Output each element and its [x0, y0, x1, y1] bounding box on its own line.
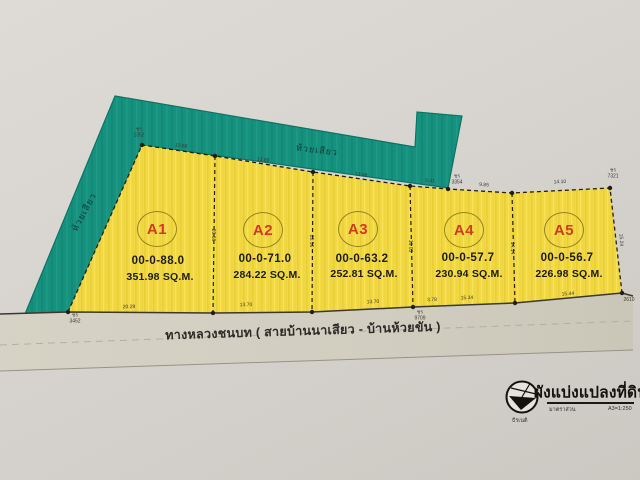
survey-dimension-label: 20.29 — [123, 305, 136, 311]
plot-rai-value: 00-0-57.7 — [442, 252, 495, 264]
survey-dimension-label: 5.41 — [425, 179, 435, 185]
logo-caption: ธีรเนติ — [512, 417, 528, 425]
plot-id: A5 — [554, 222, 574, 239]
survey-marker-label: ชร 1352 — [133, 127, 144, 139]
plot-area-value: 351.98 SQ.M. — [126, 271, 193, 283]
plan-title: ผังแบ่งแปลงที่ดิน — [534, 380, 640, 405]
survey-dimension-label: 3.78 — [427, 298, 437, 304]
plot-area-value: 226.98 SQ.M. — [535, 268, 602, 280]
survey-dimension-label: 14.14 — [508, 242, 514, 255]
company-logo-icon — [507, 382, 538, 413]
plot-rai-value: 00-0-71.0 — [239, 253, 292, 265]
survey-dimension-label: 20.66 — [209, 229, 215, 242]
title-underline — [547, 402, 634, 404]
plot-area-value: 284.22 SQ.M. — [233, 269, 300, 281]
plot-id-badge: A1 — [137, 211, 177, 247]
plot-id-badge: A5 — [544, 212, 584, 248]
plot-id-badge: A4 — [444, 212, 484, 248]
survey-dimension-label: 9.85 — [479, 183, 489, 189]
plot-rai-value: 00-0-63.2 — [336, 253, 389, 265]
survey-dimension-label: 20.56 — [307, 235, 313, 248]
survey-dimension-label: 15.34 — [461, 296, 474, 302]
plot-rai-value: 00-0-56.7 — [541, 252, 594, 264]
survey-dimension-label: 14.10 — [554, 180, 567, 186]
plot-rai-value: 00-0-88.0 — [132, 255, 185, 267]
plan-photo: ห้วยเสียว ห้วยเสียว A1 00-0-88.0 351.98 … — [0, 0, 640, 480]
plot-id-badge: A2 — [243, 212, 283, 248]
plot-id: A1 — [147, 221, 167, 238]
scale-label: มาตราส่วน — [549, 406, 576, 414]
plot-area-value: 252.81 SQ.M. — [330, 268, 397, 280]
plot-id: A3 — [348, 221, 368, 238]
plot-id: A2 — [253, 222, 273, 239]
survey-dimension-label: 16.05 — [406, 240, 412, 253]
survey-marker-label: ชร 3354 — [451, 174, 462, 186]
survey-marker-label: ชร 3452 — [69, 313, 80, 325]
survey-dimension-label: 13.70 — [240, 303, 253, 309]
survey-dimension-label: 15.44 — [562, 292, 575, 299]
plot-id: A4 — [454, 222, 474, 239]
scale-value: A3=1:250 — [608, 406, 632, 412]
survey-marker-label: 2610 — [623, 298, 634, 304]
survey-dimension-label: 13.70 — [367, 300, 380, 306]
plan-drawing — [0, 0, 640, 480]
plot-area-value: 230.94 SQ.M. — [435, 268, 502, 280]
survey-dimension-label: 15.24 — [617, 234, 623, 247]
survey-marker-label: ชร 7321 — [607, 168, 618, 180]
plot-id-badge: A3 — [338, 211, 378, 247]
survey-marker-label: ชร 9709 — [414, 310, 425, 322]
